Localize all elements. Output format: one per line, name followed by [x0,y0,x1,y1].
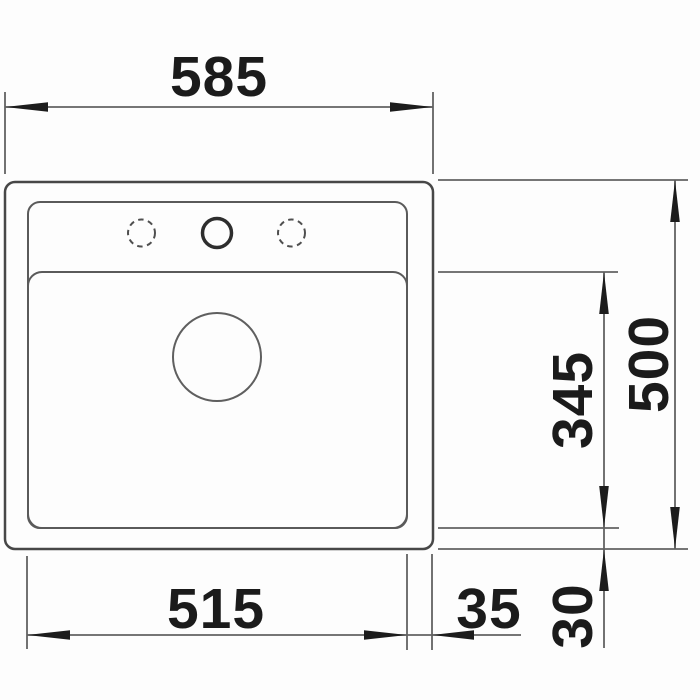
drain-circle-icon [173,313,261,401]
arrow-right-icon [364,630,407,640]
sink-plan-view [5,182,433,549]
arrow-left-icon [5,102,48,112]
sink-dimension-drawing: 585 515 35 345 [0,0,700,700]
dimension-label-overall-width: 585 [170,45,268,109]
dimension-basin-width-and-right-offset: 515 35 [27,554,522,650]
arrow-basin-depth-bottom-icon [599,486,609,528]
sink-deck-edge [28,202,407,528]
tap-hole-left-dashed-icon [128,220,155,247]
tap-hole-right-dashed-icon [278,220,305,247]
technical-drawing-page: 585 515 35 345 [0,0,700,700]
dimension-overall-width: 585 [5,45,433,174]
arrow-right-icon [390,102,433,112]
dimension-label-right-offset: 35 [456,577,521,641]
sink-outer-edge [5,182,433,549]
dimension-label-basin-width: 515 [167,577,265,641]
arrow-basin-depth-top-icon [599,272,609,314]
dimension-label-basin-depth: 345 [541,351,605,449]
arrow-left-icon [27,630,70,640]
dimension-label-overall-depth: 500 [617,315,681,413]
arrow-overall-depth-bottom-icon [670,507,680,549]
tap-hole-center-icon [203,219,232,248]
dimension-label-bottom-offset: 30 [541,583,605,648]
arrow-overall-depth-top-icon [670,180,680,222]
